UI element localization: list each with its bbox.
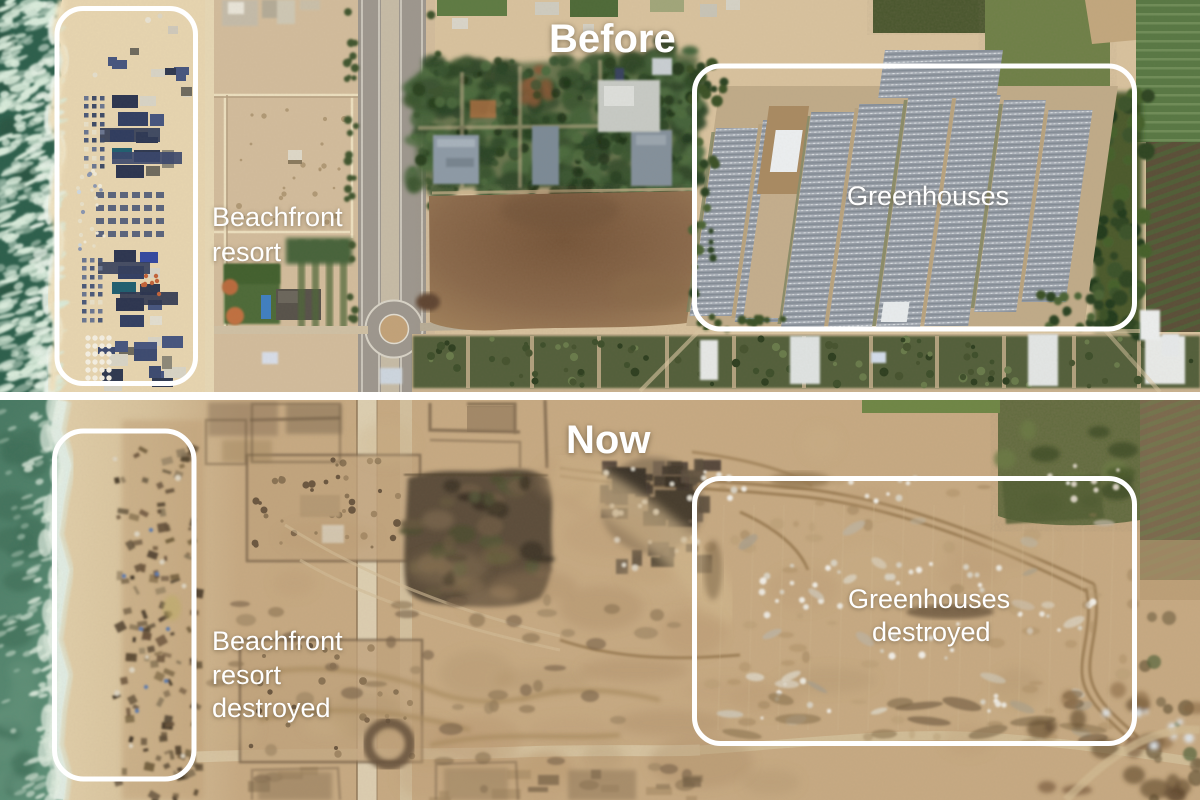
svg-text:destroyed: destroyed	[212, 693, 331, 723]
svg-text:Now: Now	[566, 418, 651, 462]
svg-text:Beachfront: Beachfront	[212, 626, 343, 656]
svg-text:Before: Before	[549, 17, 676, 61]
svg-text:Greenhouses: Greenhouses	[847, 181, 1009, 211]
svg-text:resort: resort	[212, 660, 282, 690]
svg-text:Greenhouses: Greenhouses	[848, 584, 1010, 614]
svg-text:destroyed: destroyed	[872, 617, 991, 647]
svg-text:Beachfront: Beachfront	[212, 202, 343, 232]
svg-text:resort: resort	[212, 237, 282, 267]
